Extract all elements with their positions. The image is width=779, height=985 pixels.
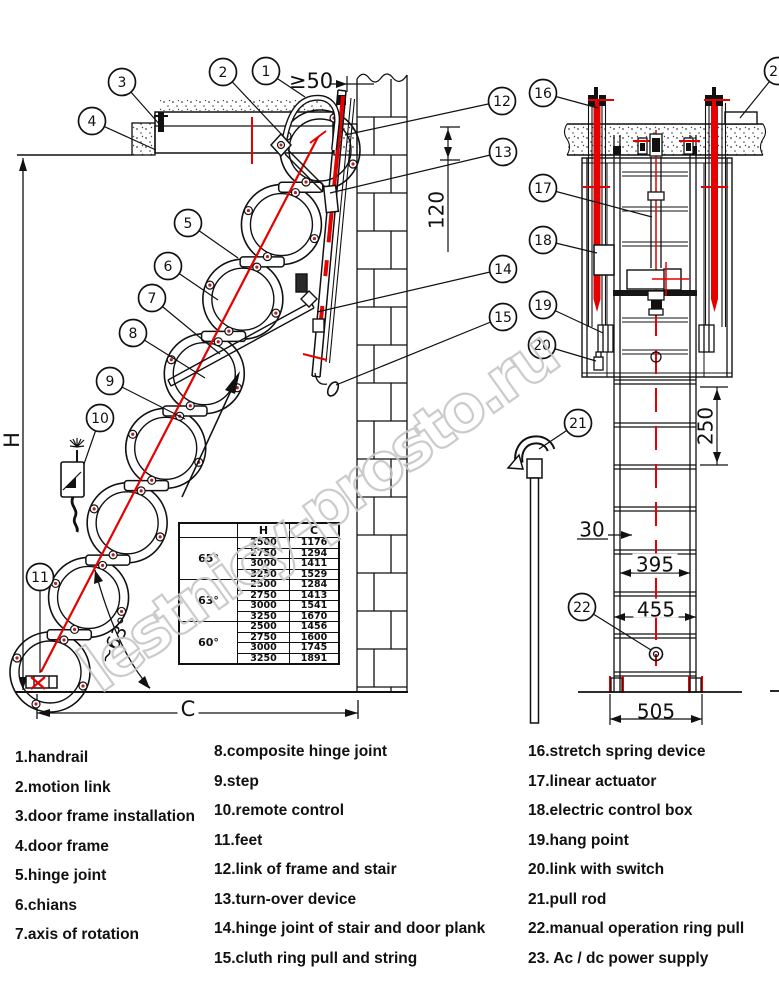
legend-item: 1.handrail <box>15 743 195 773</box>
legend-column-3: 16.stretch spring device17.linear actuat… <box>528 737 744 973</box>
legend-column-1: 1.handrail2.motion link3.door frame inst… <box>15 743 195 950</box>
legend-item: 5.hinge joint <box>15 861 195 891</box>
legend-item: 12.link of frame and stair <box>214 855 485 885</box>
legend-item: 16.stretch spring device <box>528 737 744 767</box>
legend-item: 6.chians <box>15 891 195 921</box>
legend-item: 22.manual operation ring pull <box>528 914 744 944</box>
parts-legend: 1.handrail2.motion link3.door frame inst… <box>0 0 779 985</box>
legend-item: 20.link with switch <box>528 855 744 885</box>
legend-item: 18.electric control box <box>528 796 744 826</box>
legend-item: 9.step <box>214 767 485 797</box>
legend-item: 8.composite hinge joint <box>214 737 485 767</box>
legend-item: 14.hinge joint of stair and door plank <box>214 914 485 944</box>
legend-item: 11.feet <box>214 826 485 856</box>
legend-item: 4.door frame <box>15 832 195 862</box>
legend-item: 15.cluth ring pull and string <box>214 944 485 974</box>
legend-column-2: 8.composite hinge joint9.step10.remote c… <box>214 737 485 973</box>
legend-item: 3.door frame installation <box>15 802 195 832</box>
legend-item: 17.linear actuator <box>528 767 744 797</box>
legend-item: 10.remote control <box>214 796 485 826</box>
legend-item: 21.pull rod <box>528 885 744 915</box>
legend-item: 23. Ac / dc power supply <box>528 944 744 974</box>
legend-item: 2.motion link <box>15 773 195 803</box>
legend-item: 13.turn-over device <box>214 885 485 915</box>
attic-ladder-technical-drawing: 1234567891011121314151617181920212223 ≥5… <box>0 0 779 985</box>
legend-item: 19.hang point <box>528 826 744 856</box>
legend-item: 7.axis of rotation <box>15 920 195 950</box>
